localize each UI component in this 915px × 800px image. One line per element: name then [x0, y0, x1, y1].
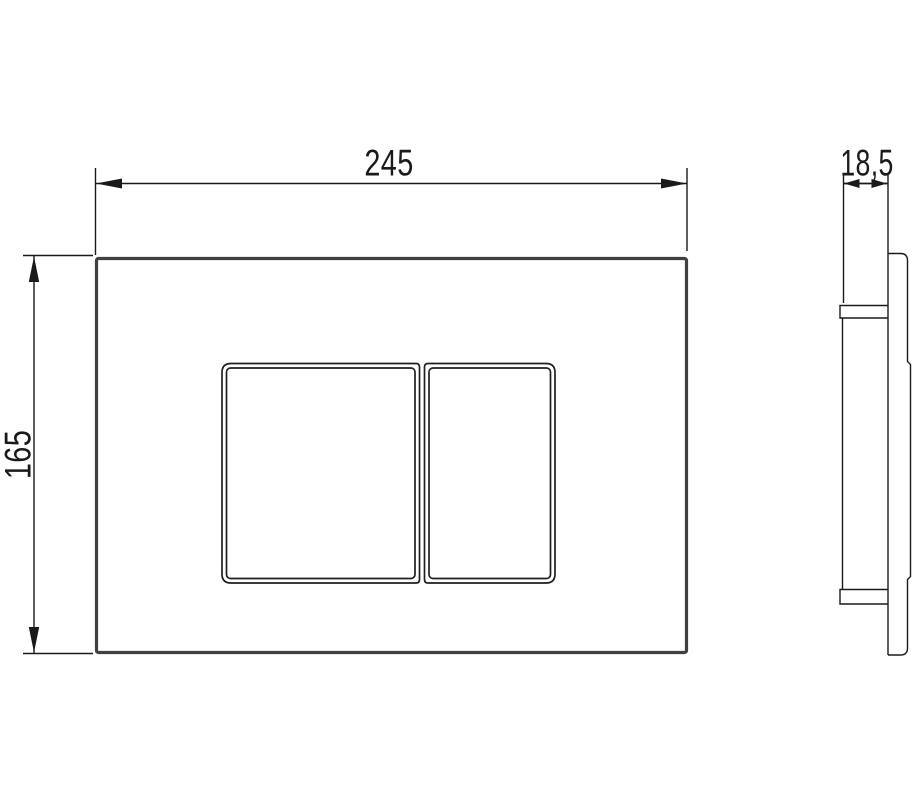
side-clip-lower	[840, 590, 888, 605]
height-arrow-bottom	[29, 627, 39, 653]
width-arrow-left	[96, 179, 122, 189]
depth-dimension: 18,5	[840, 142, 893, 188]
flush-plate-technical-drawing: 245 165 18,5	[0, 0, 915, 800]
plate-outline	[97, 259, 687, 653]
height-arrow-top	[29, 257, 39, 283]
width-dimension: 245	[96, 143, 688, 255]
side-view	[840, 175, 911, 655]
width-dimension-label: 245	[364, 143, 413, 184]
width-arrow-right	[661, 179, 687, 189]
technical-drawing-page: 245 165 18,5	[0, 0, 915, 800]
side-plate-profile	[888, 254, 911, 656]
depth-dimension-label: 18,5	[840, 142, 893, 183]
front-view	[97, 259, 687, 653]
height-dimension-label: 165	[0, 430, 39, 479]
height-dimension: 165	[0, 256, 93, 654]
side-clip-upper	[840, 306, 888, 319]
